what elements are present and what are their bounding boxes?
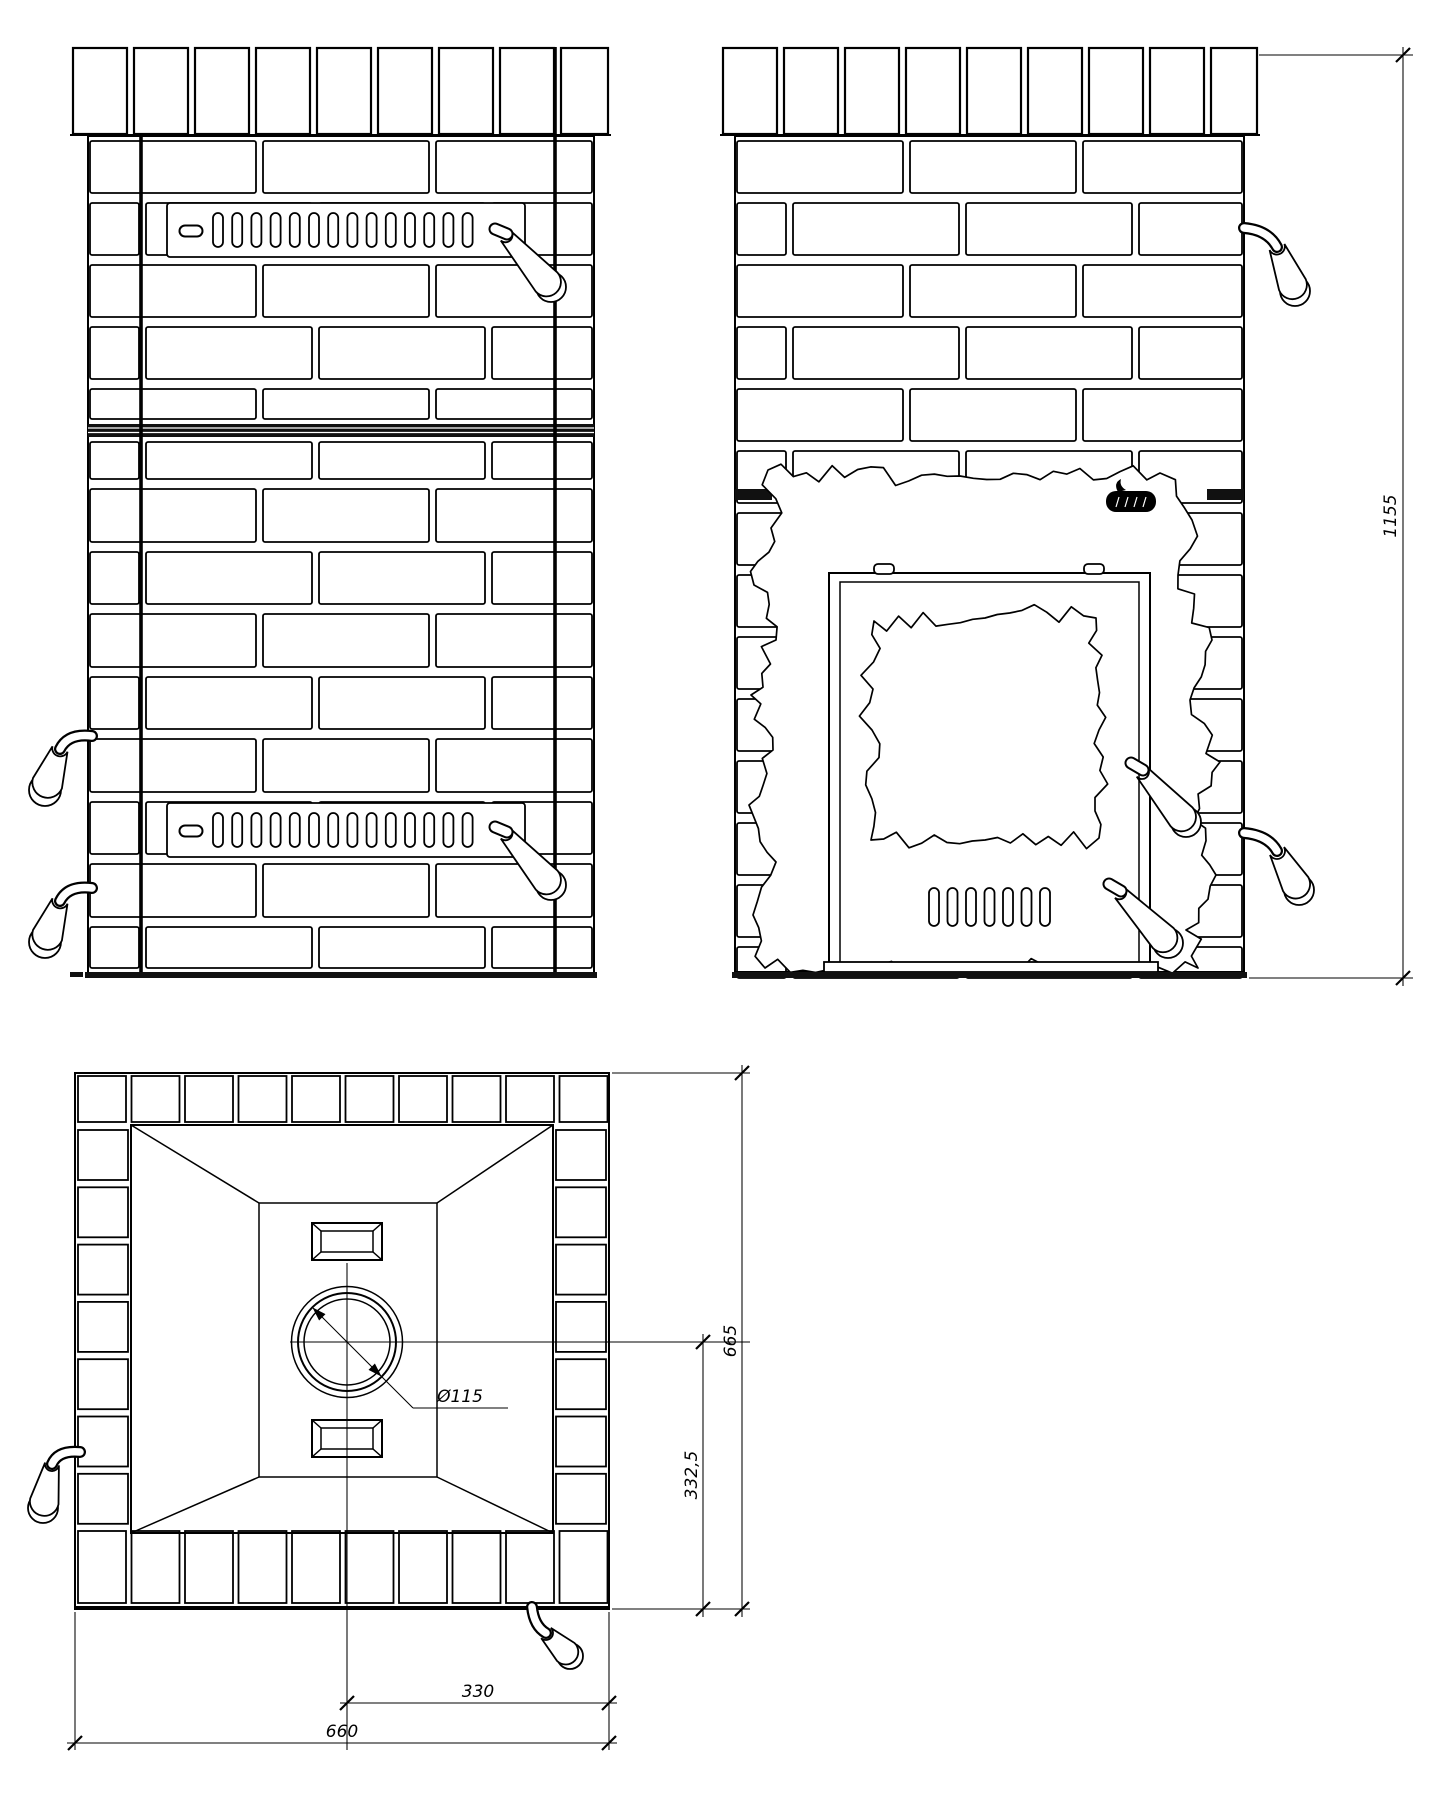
perimeter-bricks <box>78 1076 608 1603</box>
dimension-label-chimney-to-side: 330 <box>462 1682 494 1702</box>
dimension-chimney-to-side <box>340 1612 617 1750</box>
crown-brick-row <box>70 48 611 135</box>
lower-damper-grille <box>167 803 525 857</box>
top-plan-view <box>28 1073 750 1750</box>
door-hinge-left <box>874 564 894 574</box>
dimension-label-overall-height: 1155 <box>1381 494 1401 537</box>
right-side-handle-upper <box>1244 228 1310 306</box>
plan-handle-bottom <box>532 1607 583 1669</box>
left-side-handle-lower <box>29 888 92 958</box>
base-plinth <box>70 972 597 978</box>
steam-vent <box>312 1223 382 1260</box>
crown-brick-row <box>720 48 1260 135</box>
dimension-label-chimney-diameter: Ø115 <box>436 1387 483 1407</box>
door-air-slots <box>929 888 1050 926</box>
dimension-label-chimney-to-rear: 332,5 <box>682 1451 702 1500</box>
dimension-label-overall-depth: 665 <box>721 1325 741 1357</box>
stove-technical-drawing: 1155 665 332,5 330 660 Ø115 <box>0 0 1440 1800</box>
grille-side-elevation <box>29 47 611 978</box>
upper-damper-grille <box>167 203 525 257</box>
dimension-label-overall-width: 660 <box>326 1722 358 1742</box>
center-lines <box>290 1263 750 1750</box>
top-bevel <box>131 1125 553 1533</box>
door-glass-window <box>859 605 1107 849</box>
door-sill <box>824 962 1158 972</box>
firebox-door-elevation <box>720 48 1314 978</box>
outer-outline <box>75 1073 609 1609</box>
metal-band <box>88 424 594 437</box>
right-side-handle-lower <box>1244 833 1314 905</box>
base-plinth <box>732 972 1247 978</box>
drawing-sheet: 1155 665 332,5 330 660 Ø115 <box>0 0 1440 1800</box>
door-hinge-right <box>1084 564 1104 574</box>
left-side-handle-upper <box>29 736 92 806</box>
plan-handle-left <box>28 1452 80 1523</box>
